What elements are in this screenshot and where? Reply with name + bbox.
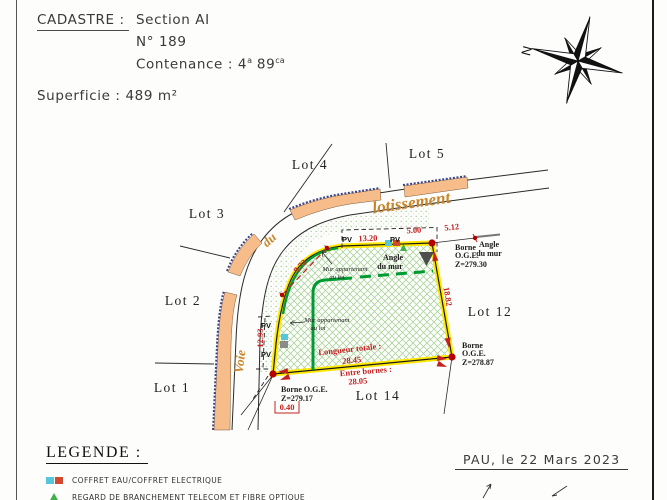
place-date: PAU, le 22 Mars 2023 — [455, 452, 628, 470]
longueur-totale-value: 28.45 — [342, 354, 362, 366]
lot-5-label: Lot 5 — [409, 146, 445, 161]
lot-12-label: Lot 12 — [468, 304, 513, 319]
borne-oge-right-z: Z=278.87 — [462, 358, 494, 367]
regard-telecom-icon — [49, 493, 59, 500]
coffret-eau-electrique-icon — [46, 477, 63, 484]
entre-bornes-value: 28.05 — [348, 375, 368, 386]
mur-appartenant-label: Mur appartenant — [303, 317, 349, 324]
cadastral-plan-page: CADASTRE : Section AI N° 189 Contenance … — [0, 0, 667, 500]
borne-oge-top-z: Z=279.30 — [455, 260, 487, 269]
plan-drawing: Lot 1 Lot 2 Lot 3 Lot 4 Lot 5 Lot 12 Lot… — [0, 0, 667, 500]
borne-oge-bottom-z: Z=279.17 — [281, 394, 313, 403]
measure-13-20: 13.20 — [358, 233, 377, 244]
lot-1-label: Lot 1 — [154, 380, 190, 395]
offset-0-40: 0.40 — [280, 402, 295, 412]
legend-item-coffret: COFFRET EAU/COFFRET ELECTRIQUE — [46, 476, 222, 485]
pv-label: PV — [390, 235, 400, 244]
mur-appartenant-label: au lot — [329, 274, 344, 281]
measure-5-12: 5.12 — [444, 221, 460, 233]
regard-gris-icon — [280, 341, 288, 348]
pv-label: PV — [342, 235, 352, 244]
angle-mur-label: du mur — [377, 262, 403, 271]
pv-label: PV — [261, 350, 271, 359]
street-voie-label: Voie — [231, 349, 249, 374]
measure-12-93: 12.93 — [255, 328, 265, 347]
mur-appartenant-label: au lot — [310, 325, 325, 332]
lot-14-label: Lot 14 — [356, 388, 401, 403]
borne-oge-top-label: O.G.E. — [455, 251, 479, 260]
lot-4-label: Lot 4 — [292, 157, 328, 172]
lot-2-label: Lot 2 — [165, 293, 201, 308]
legend-item-label: REGARD DE BRANCHEMENT TELECOM ET FIBRE O… — [72, 493, 305, 500]
coffret-eau-icon — [281, 334, 288, 340]
mur-appartenant-label: Mur appartenant — [321, 266, 367, 273]
street-du-label: du — [259, 229, 279, 249]
lot-3-label: Lot 3 — [189, 206, 225, 221]
borne-oge-right-label: O.G.E. — [462, 349, 486, 358]
angle-mur-label: Angle — [479, 240, 499, 249]
angle-mur-label: du mur — [476, 249, 502, 258]
legend-item-regard: REGARD DE BRANCHEMENT TELECOM ET FIBRE O… — [46, 493, 305, 500]
measure-5-00: 5.00 — [406, 225, 421, 236]
legend-item-label: COFFRET EAU/COFFRET ELECTRIQUE — [72, 476, 222, 485]
borne-oge-bottom-label: Borne O.G.E. — [281, 385, 328, 394]
legend-title: LEGENDE : — [46, 444, 148, 464]
angle-mur-label: Angle — [383, 253, 403, 262]
signature-strokes — [483, 484, 567, 498]
